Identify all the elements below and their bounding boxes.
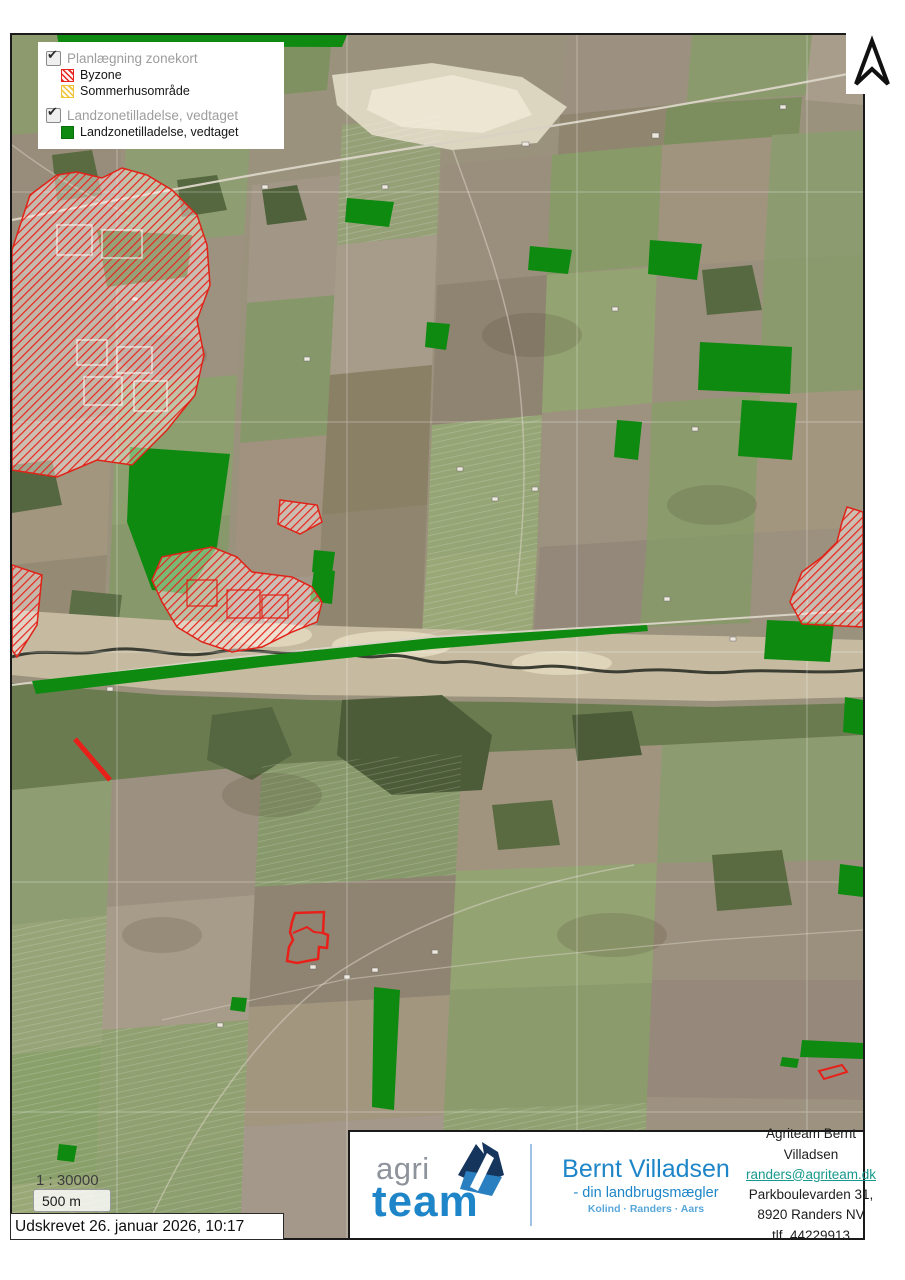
print-page: ✔ Planlægning zonekort Byzone Sommerhuso… xyxy=(0,0,905,1280)
checkbox-landzonetilladelse[interactable]: ✔ xyxy=(46,108,61,123)
contact-name: Agriteam Bernt Villadsen xyxy=(746,1124,876,1165)
north-arrow-icon xyxy=(846,32,898,94)
broker-tagline: - din landbrugsmægler xyxy=(546,1185,746,1201)
landzone-swatch-icon xyxy=(61,126,74,139)
scale-bar: 500 m xyxy=(33,1189,111,1212)
broker-cities: Kolind · Randers · Aars xyxy=(546,1203,746,1215)
legend-group-label: Landzonetilladelse, vedtaget xyxy=(67,108,238,123)
broker-name: Bernt Villadsen xyxy=(546,1155,746,1184)
contact-phone: tlf. 44229913 xyxy=(746,1226,876,1246)
aerial-map xyxy=(12,35,863,1238)
agriteam-logo-word2: team xyxy=(372,1177,479,1227)
north-arrow xyxy=(846,32,898,94)
map-frame xyxy=(10,33,865,1240)
scale-ratio-text: 1 : 30000 xyxy=(36,1172,99,1189)
contact-street: Parkboulevarden 31, xyxy=(746,1185,876,1205)
agriteam-logo: agri team xyxy=(370,1139,522,1231)
legend-item-label: Byzone xyxy=(80,68,122,82)
sommerhus-swatch-icon xyxy=(61,85,74,98)
contact-block: Agriteam Bernt Villadsen randers@agritea… xyxy=(746,1124,876,1246)
legend-item-label: Landzonetilladelse, vedtaget xyxy=(80,125,238,139)
scale-bar-label: 500 m xyxy=(42,1193,81,1209)
legend: ✔ Planlægning zonekort Byzone Sommerhuso… xyxy=(38,42,284,149)
legend-group-label: Planlægning zonekort xyxy=(67,51,198,66)
checkmark-icon: ✔ xyxy=(47,48,58,61)
logo-divider xyxy=(530,1144,532,1226)
checkmark-icon: ✔ xyxy=(47,105,58,118)
legend-item-label: Sommerhusområde xyxy=(80,84,190,98)
checkbox-planlaegning-zonekort[interactable]: ✔ xyxy=(46,51,61,66)
contact-email-link[interactable]: randers@agriteam.dk xyxy=(746,1167,876,1182)
brand-box: agri team Bernt Villadsen - din landbrug… xyxy=(348,1130,865,1240)
broker-brand: Bernt Villadsen - din landbrugsmægler Ko… xyxy=(546,1155,746,1215)
byzone-swatch-icon xyxy=(61,69,74,82)
contact-city: 8920 Randers NV xyxy=(746,1205,876,1225)
printed-timestamp: Udskrevet 26. januar 2026, 10:17 xyxy=(10,1213,284,1240)
